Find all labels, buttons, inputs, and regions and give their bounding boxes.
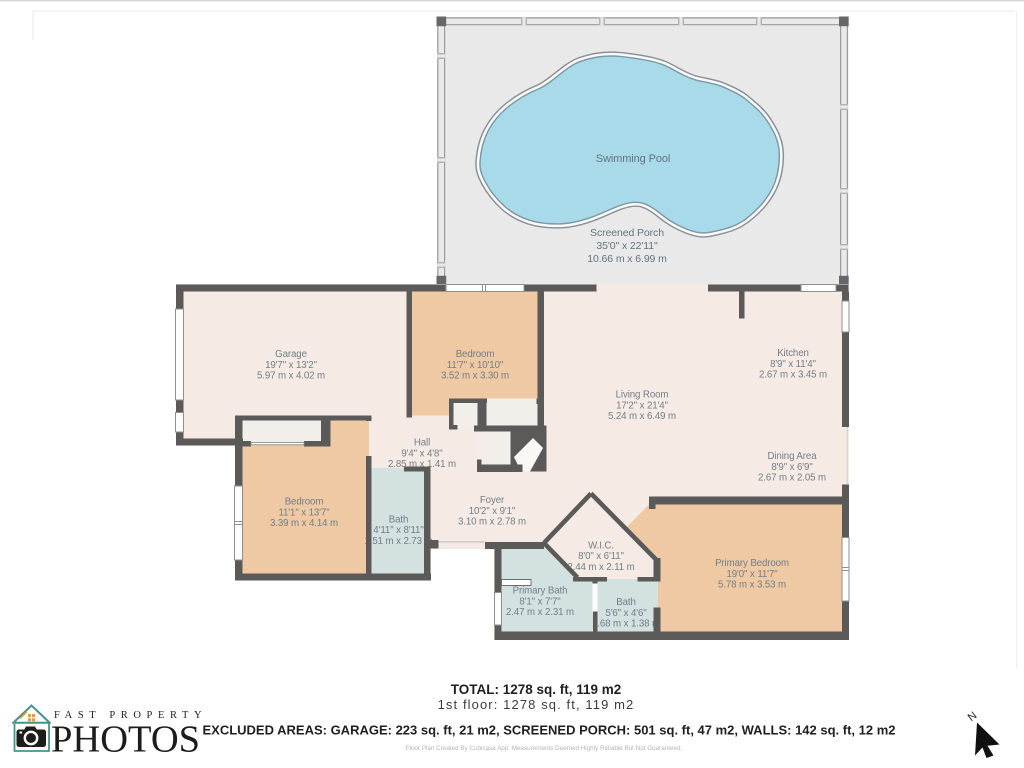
svg-text:Floor Plan Created By Cubicasa: Floor Plan Created By Cubicasa App. Meas… [406,745,683,752]
svg-text:EXCLUDED AREAS: GARAGE: 223 sq: EXCLUDED AREAS: GARAGE: 223 sq. ft, 21 m… [202,723,895,738]
svg-text:Screened Porch35'0" x 22'11"10: Screened Porch35'0" x 22'11"10.66 m x 6.… [587,227,667,265]
svg-text:Swimming Pool: Swimming Pool [596,153,671,165]
svg-text:Living Room17'2" x 21'4"5.24 m: Living Room17'2" x 21'4"5.24 m x 6.49 m [608,390,676,423]
svg-text:PHOTOS: PHOTOS [51,719,200,761]
svg-text:TOTAL: 1278 sq. ft, 119 m2: TOTAL: 1278 sq. ft, 119 m2 [451,682,622,697]
svg-text:1st floor: 1278 sq. ft, 119 m2: 1st floor: 1278 sq. ft, 119 m2 [438,697,635,712]
